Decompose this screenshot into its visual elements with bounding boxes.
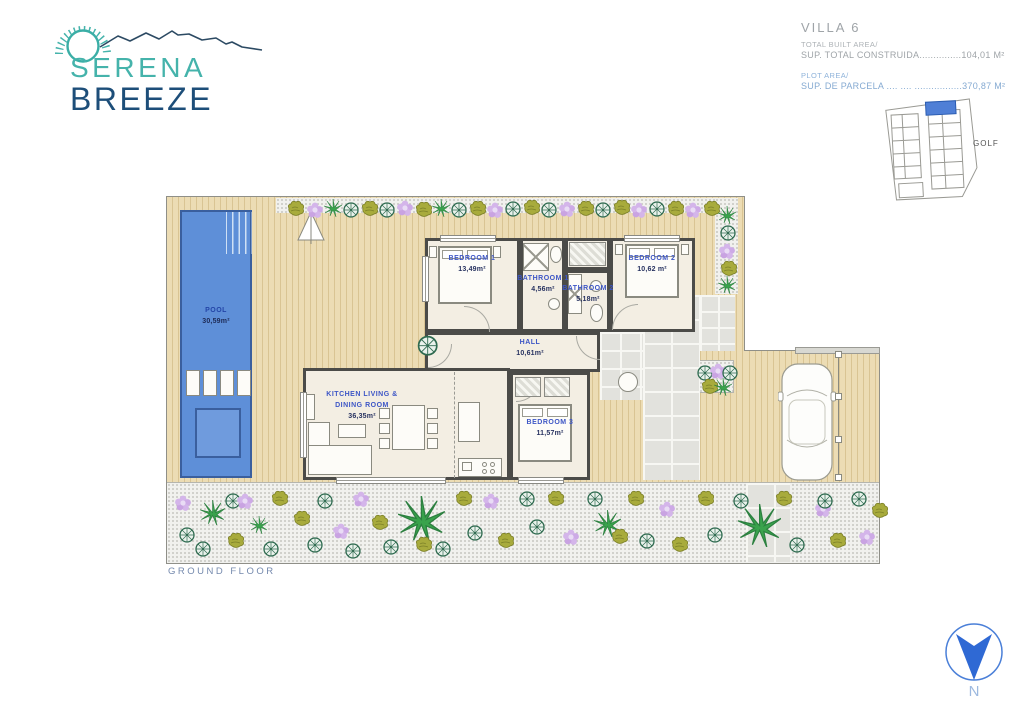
plant-bush-icon (454, 490, 472, 508)
plant-bush-icon (286, 200, 304, 218)
plant-bush-icon (468, 200, 486, 218)
plant-bush-icon (270, 490, 288, 508)
plant-flower-icon (558, 200, 576, 218)
plant-flower-icon (332, 522, 350, 540)
plant-palm-icon (738, 504, 781, 547)
serena-breeze-logo: SERENA BREEZE (26, 6, 266, 124)
plant-shrub-icon (316, 492, 334, 510)
plant-bush-icon (370, 514, 388, 532)
plant-bush-icon (670, 536, 688, 554)
ground-floor-label: GROUND FLOOR (168, 566, 276, 577)
plant-bush-icon (360, 200, 378, 218)
north-letter: N (969, 683, 980, 700)
sitemap-golf-label: GOLF (973, 139, 999, 148)
plant-flower-icon (482, 492, 500, 510)
plant-bush-icon (774, 490, 792, 508)
plant-bush-icon (292, 510, 310, 528)
built-area-value: SUP. TOTAL CONSTRUIDA...............104,… (801, 50, 1016, 60)
plant-shrub-icon (416, 334, 439, 357)
plant-shrub-icon (540, 201, 558, 219)
site-locator-map (884, 98, 980, 204)
plant-shrub-icon (850, 490, 868, 508)
plant-shrub-icon (378, 201, 396, 219)
plot-area-label: PLOT AREA/ (801, 71, 1016, 80)
plant-bush-icon (828, 532, 846, 550)
plant-shrub-icon (434, 540, 452, 558)
page-root: SERENA BREEZE VILLA 6 TOTAL BUILT AREA/ … (0, 0, 1024, 704)
plant-palm-icon (718, 276, 736, 294)
plant-bush-icon (666, 200, 684, 218)
villa-info-block: VILLA 6 TOTAL BUILT AREA/ SUP. TOTAL CON… (801, 20, 1016, 91)
plant-shrub-icon (719, 224, 737, 242)
plant-shrub-icon (648, 200, 666, 218)
plant-flower-icon (562, 528, 580, 546)
plant-bush-icon (414, 201, 432, 219)
plant-palm-icon (200, 500, 225, 525)
built-area-label: TOTAL BUILT AREA/ (801, 40, 1016, 49)
north-arrow-icon (956, 634, 992, 680)
plant-bush-icon (610, 528, 628, 546)
plant-bush-icon (626, 490, 644, 508)
plant-flower-icon (306, 201, 324, 219)
plant-shrub-icon (528, 518, 546, 536)
plant-palm-icon (324, 199, 342, 217)
plant-bush-icon (696, 490, 714, 508)
mountain-ridge-icon (100, 31, 262, 50)
plant-shrub-icon (594, 201, 612, 219)
plant-shrub-icon (344, 542, 362, 560)
plant-bush-icon (522, 199, 540, 217)
plant-bush-icon (576, 200, 594, 218)
plant-shrub-icon (638, 532, 656, 550)
plant-palm-icon (432, 199, 450, 217)
plant-palm-icon (718, 206, 736, 224)
plant-flower-icon (174, 494, 192, 512)
plant-bush-icon (496, 532, 514, 550)
plant-flower-icon (630, 201, 648, 219)
plant-flower-icon (396, 199, 414, 217)
plant-flower-icon (486, 201, 504, 219)
plot-area-value: SUP. DE PARCELA .... .... ..............… (801, 81, 1016, 91)
plant-bush-icon (414, 536, 432, 554)
plant-bush-icon (612, 199, 630, 217)
plant-bush-icon (546, 490, 564, 508)
plant-bush-icon (226, 532, 244, 550)
plant-shrub-icon (450, 201, 468, 219)
logo-text-breeze: BREEZE (70, 81, 213, 117)
plant-shrub-icon (262, 540, 280, 558)
sitemap-highlighted-villa (925, 101, 956, 116)
north-compass: N (936, 616, 1012, 702)
floor-plan: POOL 30,59m² (166, 196, 880, 564)
plant-shrub-icon (342, 201, 360, 219)
plant-flower-icon (684, 201, 702, 219)
plant-flower-icon (718, 242, 736, 260)
plants-layer (166, 196, 880, 564)
plant-shrub-icon (816, 492, 834, 510)
plant-palm-icon (714, 378, 732, 396)
villa-title: VILLA 6 (801, 20, 1016, 35)
plant-shrub-icon (518, 490, 536, 508)
plant-bush-icon (870, 502, 888, 520)
plant-shrub-icon (466, 524, 484, 542)
plant-shrub-icon (706, 526, 724, 544)
plant-palm-icon (250, 516, 268, 534)
plant-shrub-icon (504, 200, 522, 218)
plant-flower-icon (236, 492, 254, 510)
plant-shrub-icon (586, 490, 604, 508)
plant-shrub-icon (194, 540, 212, 558)
plant-flower-icon (858, 528, 876, 546)
plant-flower-icon (658, 500, 676, 518)
logo-text-serena: SERENA (70, 52, 206, 83)
plant-shrub-icon (788, 536, 806, 554)
plant-flower-icon (352, 490, 370, 508)
plant-shrub-icon (306, 536, 324, 554)
